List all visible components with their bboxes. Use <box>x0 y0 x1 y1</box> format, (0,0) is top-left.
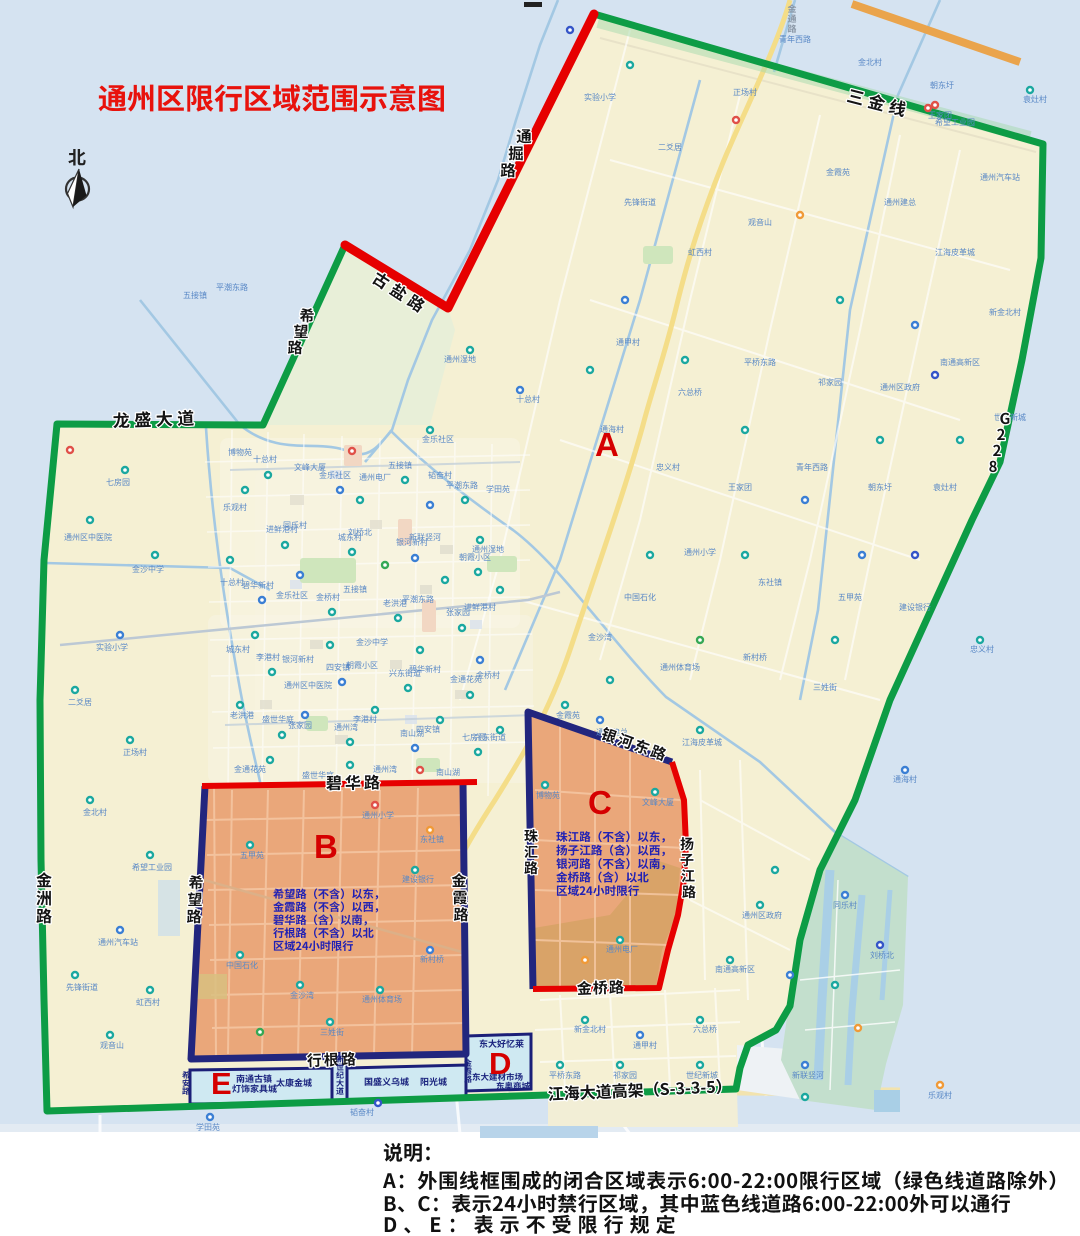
svg-text:刘桥北: 刘桥北 <box>870 950 894 960</box>
svg-text:朝东圩: 朝东圩 <box>868 482 892 492</box>
svg-text:忠义村: 忠义村 <box>656 462 680 472</box>
svg-text:通州区政府: 通州区政府 <box>880 382 920 392</box>
svg-text:乐观村: 乐观村 <box>928 1090 952 1100</box>
svg-text:刘桥北: 刘桥北 <box>348 527 372 537</box>
svg-text:新金北村: 新金北村 <box>574 1024 606 1034</box>
svg-text:A: A <box>595 426 619 463</box>
svg-text:实验小学: 实验小学 <box>584 92 616 102</box>
svg-text:正场村: 正场村 <box>733 87 757 97</box>
svg-text:韬奋村: 韬奋村 <box>350 1107 374 1117</box>
svg-text:通州区中医院: 通州区中医院 <box>64 532 112 542</box>
svg-text:银河新村: 银河新村 <box>282 654 314 664</box>
svg-text:十总村: 十总村 <box>516 394 540 404</box>
svg-text:金乐社区: 金乐社区 <box>422 434 454 444</box>
svg-text:同乐村: 同乐村 <box>283 520 307 530</box>
svg-text:同乐村: 同乐村 <box>833 900 857 910</box>
svg-text:金乐社区: 金乐社区 <box>276 590 308 600</box>
svg-text:金北村: 金北村 <box>83 807 107 817</box>
svg-text:三姓街: 三姓街 <box>813 682 837 692</box>
svg-text:正场村: 正场村 <box>123 747 147 757</box>
svg-text:金通花苑: 金通花苑 <box>234 764 266 774</box>
svg-text:新村桥: 新村桥 <box>420 954 444 964</box>
svg-text:学田苑: 学田苑 <box>486 484 510 494</box>
svg-text:东社镇: 东社镇 <box>420 834 444 844</box>
svg-text:五接镇: 五接镇 <box>183 290 207 300</box>
svg-text:博物苑: 博物苑 <box>536 790 560 800</box>
svg-text:江海皮革城: 江海皮革城 <box>682 737 722 747</box>
svg-text:张家园: 张家园 <box>288 720 312 730</box>
svg-text:进鲜港村: 进鲜港村 <box>464 602 496 612</box>
svg-text:通州电厂: 通州电厂 <box>359 472 391 482</box>
svg-text:虹西村: 虹西村 <box>688 247 712 257</box>
svg-text:金沙湾: 金沙湾 <box>290 990 314 1000</box>
svg-text:通州体育场: 通州体育场 <box>362 994 402 1004</box>
svg-text:希望工业园: 希望工业园 <box>132 862 172 872</box>
svg-text:青年西路: 青年西路 <box>796 462 828 472</box>
svg-text:朝霞小区: 朝霞小区 <box>459 553 491 562</box>
svg-text:李港村: 李港村 <box>256 652 280 662</box>
svg-text:中国石化: 中国石化 <box>624 592 656 602</box>
svg-text:中国石化: 中国石化 <box>226 960 258 970</box>
svg-text:E: E <box>211 1066 232 1101</box>
svg-text:先锋街道: 先锋街道 <box>624 197 656 207</box>
svg-text:通州区中医院: 通州区中医院 <box>284 680 332 690</box>
svg-text:乐观村: 乐观村 <box>223 502 247 512</box>
svg-text:四安镇: 四安镇 <box>416 724 440 734</box>
svg-text:文峰大厦: 文峰大厦 <box>294 462 326 472</box>
svg-text:新村桥: 新村桥 <box>743 652 767 662</box>
svg-text:十总村: 十总村 <box>253 454 277 464</box>
svg-text:通州湿地: 通州湿地 <box>444 354 476 364</box>
svg-text:通州小学: 通州小学 <box>684 547 716 557</box>
svg-text:老洪港: 老洪港 <box>230 710 254 720</box>
svg-text:朝东圩: 朝东圩 <box>930 80 954 90</box>
svg-text:先锋街道: 先锋街道 <box>66 982 98 992</box>
svg-text:王家团: 王家团 <box>928 110 952 120</box>
svg-text:新金北村: 新金北村 <box>989 307 1021 317</box>
svg-text:五甲苑: 五甲苑 <box>240 850 264 860</box>
svg-text:金霞苑: 金霞苑 <box>556 710 580 720</box>
svg-text:东社镇: 东社镇 <box>758 577 782 587</box>
svg-text:新联竖河: 新联竖河 <box>792 1070 824 1080</box>
svg-text:通州汽车站: 通州汽车站 <box>98 937 138 947</box>
svg-text:金桥村: 金桥村 <box>316 592 340 602</box>
svg-text:通州小学: 通州小学 <box>362 810 394 820</box>
svg-text:实验小学: 实验小学 <box>96 642 128 652</box>
svg-text:袁灶村: 袁灶村 <box>933 482 957 492</box>
svg-text:南通高新区: 南通高新区 <box>940 357 980 367</box>
svg-text:金沙中学: 金沙中学 <box>132 564 164 574</box>
svg-text:城东村: 城东村 <box>226 644 250 654</box>
svg-text:金霞苑: 金霞苑 <box>826 167 850 177</box>
svg-text:博物苑: 博物苑 <box>228 447 252 457</box>
svg-text:三姓街: 三姓街 <box>320 1027 344 1037</box>
svg-text:忠义村: 忠义村 <box>970 644 994 654</box>
svg-text:王家团: 王家团 <box>728 482 752 492</box>
svg-text:文峰大厦: 文峰大厦 <box>642 797 674 807</box>
svg-text:七房园: 七房园 <box>106 477 130 487</box>
svg-text:通州湾: 通州湾 <box>373 764 397 774</box>
svg-text:通海村: 通海村 <box>893 774 917 784</box>
svg-text:朝霞小区: 朝霞小区 <box>346 661 378 670</box>
svg-text:六总桥: 六总桥 <box>678 387 702 397</box>
svg-text:金沙湾: 金沙湾 <box>588 632 612 642</box>
svg-text:虹西村: 虹西村 <box>136 997 160 1007</box>
svg-text:通甲村: 通甲村 <box>616 337 640 347</box>
svg-text:青年西路: 青年西路 <box>779 34 811 44</box>
svg-text:五接镇: 五接镇 <box>388 460 412 470</box>
svg-text:通甲村: 通甲村 <box>633 1040 657 1050</box>
svg-text:金桥村: 金桥村 <box>476 670 500 680</box>
svg-text:B: B <box>314 828 338 865</box>
svg-text:通州体育场: 通州体育场 <box>660 662 700 672</box>
svg-text:五甲苑: 五甲苑 <box>838 592 862 602</box>
svg-text:碧华新村: 碧华新村 <box>409 664 441 674</box>
svg-text:二爻居: 二爻居 <box>68 698 92 707</box>
svg-text:观音山: 观音山 <box>100 1040 124 1050</box>
svg-text:五接镇: 五接镇 <box>343 584 367 594</box>
svg-text:南山湖: 南山湖 <box>436 767 460 777</box>
svg-text:韬奋村: 韬奋村 <box>428 470 452 480</box>
svg-text:通州区政府: 通州区政府 <box>742 910 782 920</box>
svg-text:通州湿地: 通州湿地 <box>472 544 504 554</box>
svg-text:通州建总: 通州建总 <box>884 197 916 207</box>
svg-text:金沙中学: 金沙中学 <box>356 637 388 647</box>
svg-text:六总桥: 六总桥 <box>693 1024 717 1034</box>
svg-text:金北村: 金北村 <box>858 57 882 67</box>
svg-text:平潮东路: 平潮东路 <box>402 594 434 604</box>
svg-text:通州电厂: 通州电厂 <box>606 944 638 954</box>
svg-text:碧华新村: 碧华新村 <box>242 580 274 590</box>
svg-text:南通高新区: 南通高新区 <box>715 964 755 974</box>
svg-text:平桥东路: 平桥东路 <box>744 357 776 367</box>
svg-text:袁灶村: 袁灶村 <box>1023 94 1047 104</box>
svg-text:李港村: 李港村 <box>353 714 377 724</box>
svg-text:通州汽车站: 通州汽车站 <box>980 172 1020 182</box>
svg-text:江海皮革城: 江海皮革城 <box>935 247 975 257</box>
svg-text:建设银行: 建设银行 <box>899 602 931 612</box>
svg-text:平潮东路: 平潮东路 <box>446 480 478 490</box>
svg-text:世纪新城: 世纪新城 <box>686 1070 718 1080</box>
svg-text:学田苑: 学田苑 <box>196 1122 220 1132</box>
svg-text:祁家园: 祁家园 <box>613 1070 637 1080</box>
svg-text:观音山: 观音山 <box>748 217 772 227</box>
svg-text:二爻居: 二爻居 <box>658 143 682 152</box>
svg-text:祁家园: 祁家园 <box>818 377 842 387</box>
svg-text:平潮东路: 平潮东路 <box>216 282 248 292</box>
svg-text:C: C <box>588 784 612 821</box>
svg-text:D: D <box>489 1046 511 1081</box>
svg-text:十总村: 十总村 <box>220 577 244 587</box>
svg-text:新联竖河: 新联竖河 <box>409 532 441 542</box>
svg-text:平桥东路: 平桥东路 <box>549 1070 581 1080</box>
svg-text:建设银行: 建设银行 <box>402 874 434 884</box>
